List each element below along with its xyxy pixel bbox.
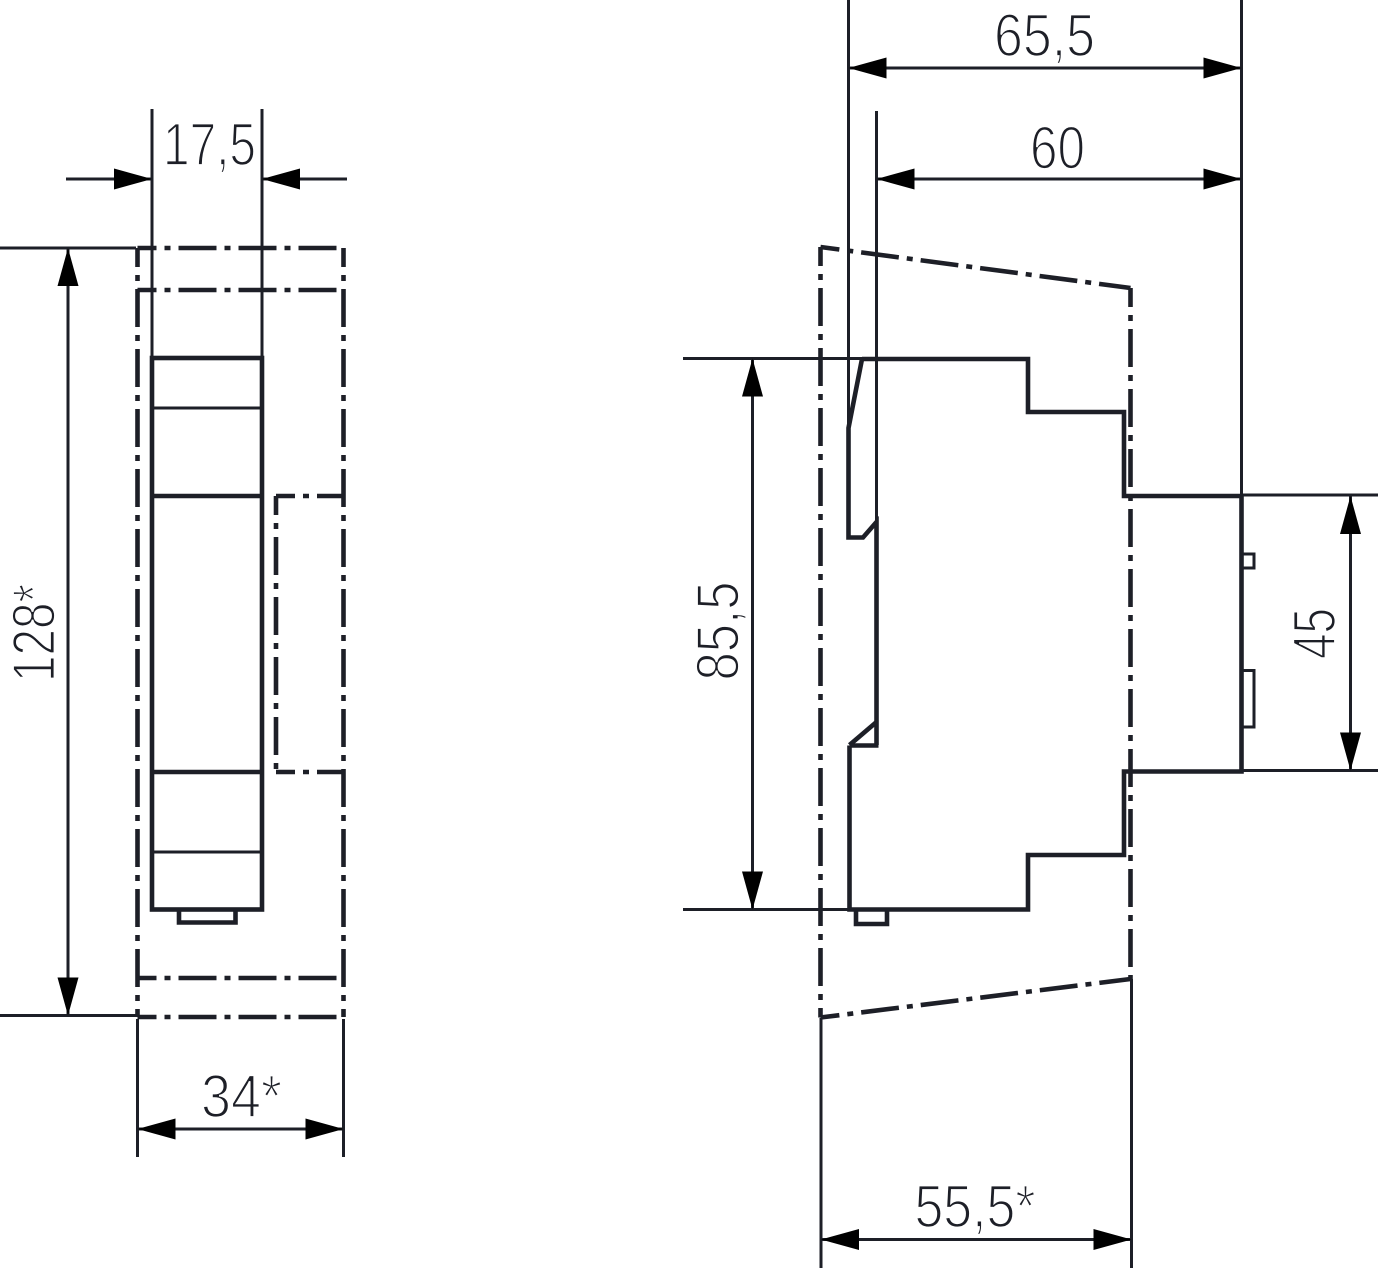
svg-text:65,5: 65,5 — [994, 2, 1095, 69]
svg-text:34*: 34* — [201, 1063, 282, 1130]
svg-text:128*: 128* — [1, 584, 68, 682]
svg-text:55,5*: 55,5* — [915, 1173, 1036, 1240]
svg-text:60: 60 — [1030, 115, 1085, 182]
svg-text:85,5: 85,5 — [685, 582, 752, 681]
svg-text:45: 45 — [1281, 608, 1348, 659]
svg-text:17,5: 17,5 — [163, 111, 256, 178]
